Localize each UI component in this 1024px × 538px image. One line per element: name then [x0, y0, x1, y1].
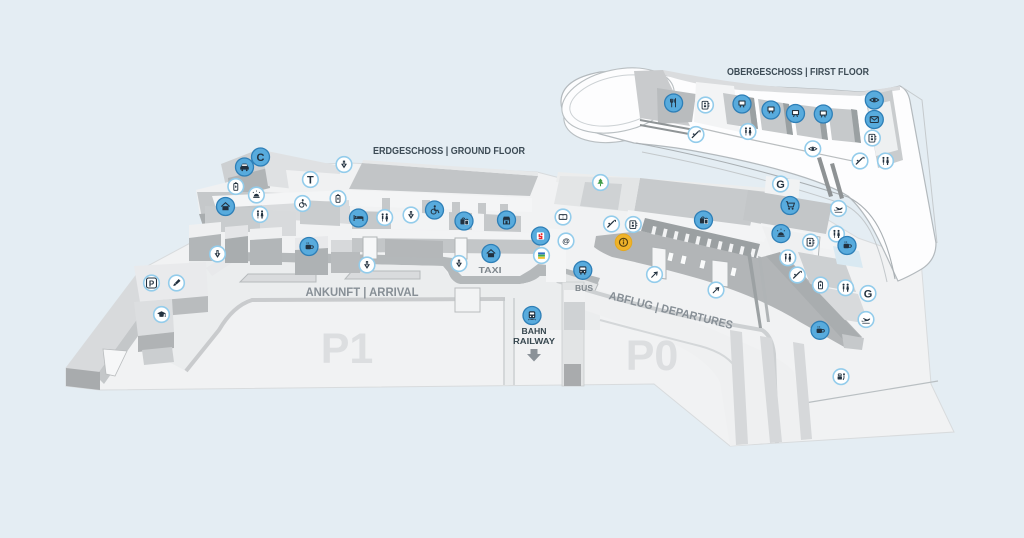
svg-text:ERDGESCHOSS | GROUND FLOOR: ERDGESCHOSS | GROUND FLOOR	[373, 145, 525, 157]
svg-text:P: P	[149, 279, 155, 288]
svg-text:TAXI: TAXI	[479, 266, 502, 275]
svg-text:C: C	[257, 152, 265, 164]
svg-text:ANKUNFT | ARRIVAL: ANKUNFT | ARRIVAL	[306, 287, 419, 299]
svg-text:BUS: BUS	[575, 284, 594, 293]
svg-text:G: G	[864, 288, 873, 300]
svg-text:RAILWAY: RAILWAY	[513, 337, 556, 346]
svg-text:P0: P0	[626, 332, 679, 380]
svg-text:P1: P1	[321, 325, 374, 373]
svg-text:OBERGESCHOSS | FIRST FLOOR: OBERGESCHOSS | FIRST FLOOR	[727, 66, 869, 78]
svg-text:G: G	[776, 179, 785, 191]
svg-text:BAHN: BAHN	[522, 327, 547, 336]
svg-text:T: T	[307, 174, 314, 186]
